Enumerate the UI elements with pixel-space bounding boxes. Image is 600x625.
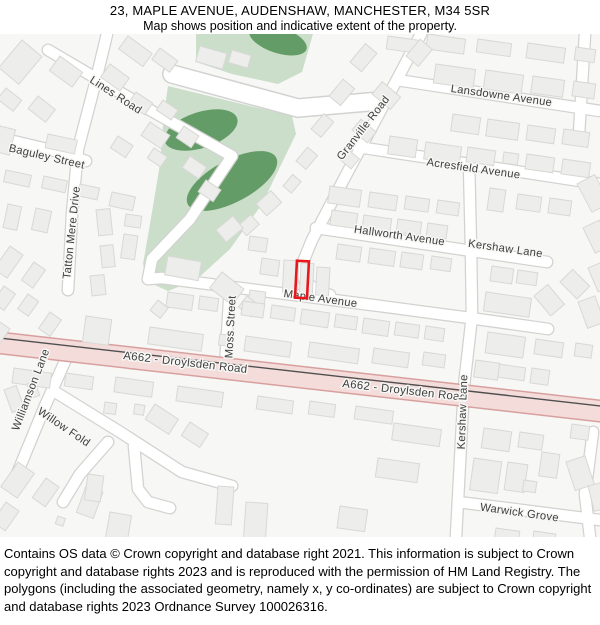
- building: [481, 428, 512, 452]
- building: [518, 432, 544, 450]
- building: [337, 506, 368, 532]
- building: [270, 305, 296, 321]
- building: [574, 343, 593, 358]
- map-image: Lines Road Baguley Street Tatton Mere Dr…: [0, 34, 600, 537]
- building: [424, 326, 445, 342]
- copyright-notice: Contains OS data © Crown copyright and d…: [0, 537, 600, 615]
- building: [124, 214, 142, 228]
- building: [387, 136, 417, 158]
- building: [516, 194, 542, 212]
- building: [516, 270, 538, 286]
- building: [103, 402, 116, 415]
- building: [90, 275, 106, 296]
- building: [134, 404, 145, 415]
- building: [474, 360, 500, 380]
- building: [574, 47, 596, 63]
- building: [248, 236, 268, 252]
- building: [96, 209, 113, 236]
- building: [198, 296, 219, 312]
- building: [121, 234, 138, 260]
- building: [260, 258, 280, 276]
- page-subtitle: Map shows position and indicative extent…: [0, 19, 600, 33]
- building: [430, 256, 452, 272]
- building: [215, 486, 234, 525]
- building: [243, 502, 268, 537]
- page-title: 23, MAPLE AVENUE, AUDENSHAW, MANCHESTER,…: [0, 0, 600, 18]
- building: [526, 125, 556, 144]
- building: [82, 316, 111, 345]
- building: [316, 267, 330, 296]
- building: [490, 266, 514, 284]
- building: [570, 424, 590, 440]
- building: [368, 248, 396, 266]
- building: [436, 200, 460, 216]
- building: [422, 352, 446, 368]
- building: [572, 81, 596, 99]
- building: [525, 154, 555, 173]
- building: [404, 196, 430, 212]
- building: [368, 192, 398, 211]
- map-container: Lines Road Baguley Street Tatton Mere Dr…: [0, 34, 600, 537]
- building: [561, 159, 591, 178]
- building: [534, 339, 564, 358]
- building: [394, 322, 420, 338]
- building: [530, 368, 550, 385]
- building: [336, 244, 362, 262]
- building: [334, 314, 358, 330]
- map-header: 23, MAPLE AVENUE, AUDENSHAW, MANCHESTER,…: [0, 0, 600, 34]
- building: [502, 152, 518, 165]
- building: [548, 198, 572, 216]
- building: [562, 129, 590, 147]
- building: [166, 292, 194, 310]
- building: [84, 474, 103, 502]
- building: [539, 452, 560, 478]
- building: [470, 458, 502, 494]
- building: [300, 309, 330, 328]
- building: [241, 301, 265, 318]
- building: [362, 318, 390, 336]
- building: [451, 114, 481, 135]
- building: [487, 188, 506, 212]
- building: [330, 210, 358, 228]
- building: [400, 252, 424, 270]
- building: [522, 480, 536, 493]
- building: [100, 245, 115, 268]
